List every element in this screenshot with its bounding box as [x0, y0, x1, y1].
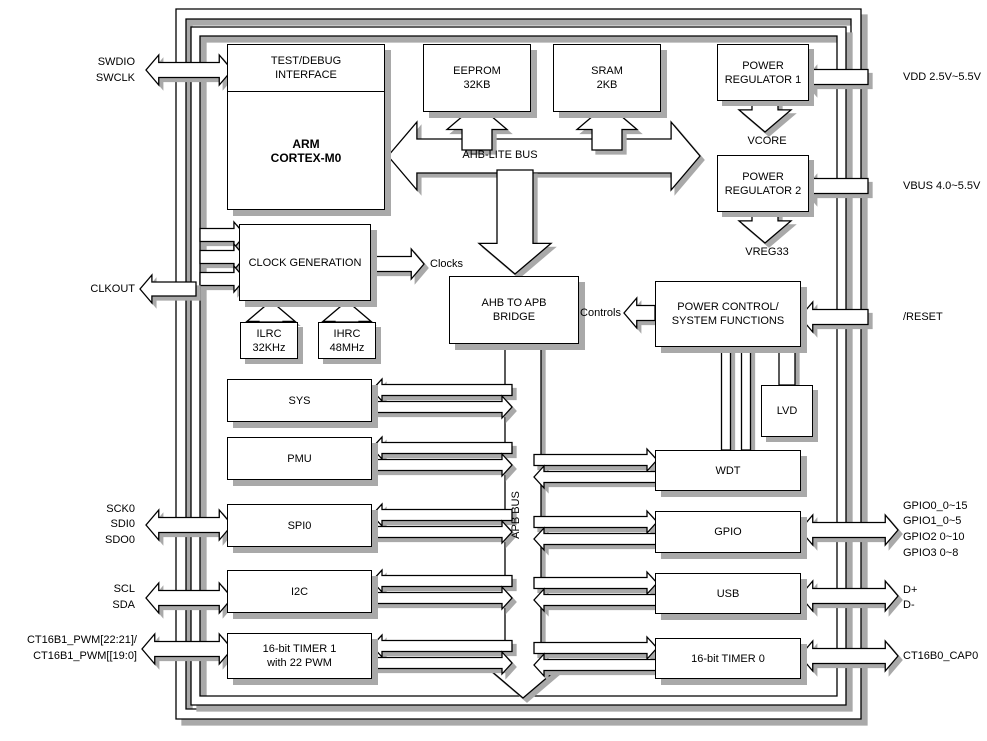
block-clock-generation: CLOCK GENERATION — [239, 224, 371, 301]
pin-sck0: SCK0 — [35, 502, 135, 516]
connector — [534, 449, 657, 471]
connector — [323, 301, 371, 322]
connector — [800, 515, 898, 545]
connector — [142, 634, 232, 664]
connector — [146, 55, 232, 85]
ahb-lite-bus-label: AHB-LITE BUS — [430, 148, 570, 162]
connector — [800, 581, 898, 611]
pin-ct16b0-cap0: CT16B0_CAP0 — [903, 649, 978, 663]
connector — [146, 510, 232, 540]
pin-clkout: CLKOUT — [35, 282, 135, 296]
block-usb: USB — [655, 573, 801, 614]
block-timer0: 16-bit TIMER 0 — [655, 638, 801, 679]
connector — [534, 572, 657, 594]
connector — [739, 212, 791, 243]
pin-swdio: SWDIO — [35, 55, 135, 69]
block-ilrc: ILRC 32KHz — [240, 322, 298, 359]
connector — [146, 583, 232, 613]
connector — [372, 437, 512, 459]
pin-sdi0: SDI0 — [35, 517, 135, 531]
block-pmu: PMU — [227, 437, 372, 480]
connector — [372, 379, 512, 401]
connector — [372, 521, 512, 543]
pin-vbus: VBUS 4.0~5.5V — [903, 179, 980, 193]
block-test-debug-arm: TEST/DEBUG INTERFACE ARM CORTEX-M0 — [227, 44, 385, 210]
pin-gpio3: GPIO3 0~8 — [903, 546, 958, 560]
block-power-control: POWER CONTROL/ SYSTEM FUNCTIONS — [655, 281, 801, 347]
pin-reset: /RESET — [903, 310, 943, 324]
block-spi0: SPI0 — [227, 504, 372, 547]
block-timer1: 16-bit TIMER 1 with 22 PWM — [227, 633, 372, 679]
block-power-regulator-2: POWER REGULATOR 2 — [717, 155, 809, 212]
block-arm-cortex-m0-label: ARM CORTEX-M0 — [228, 92, 384, 209]
block-lvd: LVD — [761, 385, 813, 437]
pin-swclk: SWCLK — [35, 71, 135, 85]
block-sram: SRAM 2KB — [553, 44, 661, 112]
pin-vdd: VDD 2.5V~5.5V — [903, 70, 981, 84]
connector — [534, 466, 657, 488]
apb-bus-label: APB BUS — [509, 485, 523, 545]
connector — [371, 249, 424, 279]
block-gpio: GPIO — [655, 511, 801, 553]
connector — [534, 589, 657, 611]
pin-gpio1: GPIO1_0~5 — [903, 514, 961, 528]
connector — [624, 298, 655, 328]
connector — [534, 637, 657, 659]
pin-sdo0: SDO0 — [35, 533, 135, 547]
block-test-debug-label: TEST/DEBUG INTERFACE — [228, 45, 384, 92]
pin-sda: SDA — [35, 598, 135, 612]
block-power-regulator-1: POWER REGULATOR 1 — [717, 44, 809, 101]
pin-ct16b1-pwm-b: CT16B1_PWM[[19:0] — [3, 649, 137, 663]
connector — [722, 347, 731, 450]
block-ahb-apb-bridge: AHB TO APB BRIDGE — [449, 276, 579, 344]
connector — [247, 301, 295, 322]
connector — [739, 101, 791, 132]
connector — [140, 275, 196, 303]
controls-label: Controls — [563, 306, 621, 320]
clocks-label: Clocks — [430, 257, 463, 271]
block-sys: SYS — [227, 379, 372, 422]
pin-scl: SCL — [35, 582, 135, 596]
block-ihrc: IHRC 48MHz — [318, 322, 376, 359]
connector — [779, 347, 795, 385]
pin-d-plus: D+ — [903, 583, 917, 597]
connector — [372, 570, 512, 592]
pin-gpio2: GPIO2 0~10 — [903, 530, 964, 544]
connector — [800, 641, 898, 671]
mcu-block-diagram: TEST/DEBUG INTERFACE ARM CORTEX-M0 EEPRO… — [0, 0, 987, 741]
connector — [372, 635, 512, 657]
pin-d-minus: D- — [903, 598, 915, 612]
connector — [372, 396, 512, 418]
connector — [372, 504, 512, 526]
connector — [742, 347, 751, 450]
vcore-label: VCORE — [735, 134, 799, 148]
connector — [534, 511, 657, 533]
block-eeprom: EEPROM 32KB — [423, 44, 531, 112]
vreg33-label: VREG33 — [735, 245, 799, 259]
connector — [372, 454, 512, 476]
connector — [479, 170, 551, 274]
connector — [372, 587, 512, 609]
pin-gpio0: GPIO0_0~15 — [903, 499, 968, 513]
block-wdt: WDT — [655, 450, 801, 491]
pin-ct16b1-pwm-a: CT16B1_PWM[22:21]/ — [3, 633, 137, 647]
block-i2c: I2C — [227, 570, 372, 613]
connector — [534, 528, 657, 550]
